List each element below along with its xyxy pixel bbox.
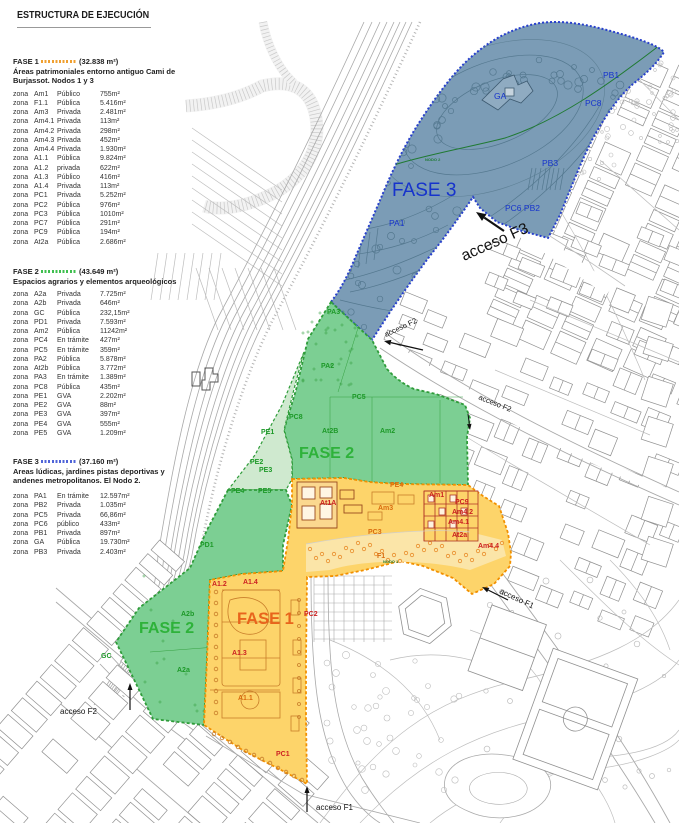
svg-text:PE1: PE1 — [261, 429, 274, 436]
svg-text:NODO 1: NODO 1 — [383, 559, 399, 564]
svg-text:PA2: PA2 — [321, 363, 334, 370]
svg-text:PC9: PC9 — [455, 499, 469, 506]
svg-text:PC6 PB2: PC6 PB2 — [505, 203, 540, 213]
svg-text:PE2: PE2 — [250, 459, 263, 466]
svg-text:A1.1: A1.1 — [238, 695, 253, 702]
svg-text:acceso F1: acceso F1 — [316, 803, 353, 812]
svg-text:PD1: PD1 — [200, 542, 214, 549]
svg-text:GC: GC — [101, 653, 112, 660]
svg-text:A1.3: A1.3 — [232, 650, 247, 657]
svg-text:A2a: A2a — [177, 667, 190, 674]
svg-text:Am1: Am1 — [429, 492, 444, 499]
svg-text:A1.2: A1.2 — [212, 581, 227, 588]
svg-text:Am3: Am3 — [378, 505, 393, 512]
svg-text:Am4.1: Am4.1 — [448, 519, 469, 526]
svg-text:PE4: PE4 — [390, 482, 403, 489]
svg-text:PE5: PE5 — [258, 488, 271, 495]
svg-text:PC8: PC8 — [585, 98, 602, 108]
svg-text:NODO 2: NODO 2 — [425, 157, 441, 162]
svg-text:FASE 2: FASE 2 — [139, 620, 194, 637]
svg-text:A2b: A2b — [181, 611, 194, 618]
svg-text:PC8: PC8 — [289, 414, 303, 421]
svg-text:PE3: PE3 — [259, 467, 272, 474]
svg-text:FASE 1: FASE 1 — [237, 610, 294, 628]
svg-text:GA: GA — [494, 91, 507, 101]
svg-text:At2a: At2a — [452, 532, 467, 539]
svg-text:Am4.2: Am4.2 — [452, 509, 473, 516]
svg-text:Am2: Am2 — [380, 428, 395, 435]
svg-text:PC5: PC5 — [352, 394, 366, 401]
svg-text:FASE 2: FASE 2 — [299, 445, 354, 462]
svg-text:FASE 3: FASE 3 — [392, 180, 456, 201]
svg-text:PA3: PA3 — [327, 309, 340, 316]
svg-text:PC3: PC3 — [368, 529, 382, 536]
svg-text:PA1: PA1 — [389, 218, 405, 228]
svg-text:PB1: PB1 — [603, 70, 619, 80]
svg-text:A1.4: A1.4 — [243, 579, 258, 586]
svg-text:PB3: PB3 — [542, 158, 558, 168]
svg-text:acceso F2: acceso F2 — [60, 707, 97, 716]
svg-text:PE4: PE4 — [231, 488, 244, 495]
svg-text:PC1: PC1 — [276, 751, 290, 758]
svg-text:PC2: PC2 — [304, 611, 318, 618]
svg-text:Am4.4: Am4.4 — [478, 543, 499, 550]
svg-text:At2B: At2B — [322, 428, 338, 435]
svg-text:At1A: At1A — [320, 500, 336, 507]
